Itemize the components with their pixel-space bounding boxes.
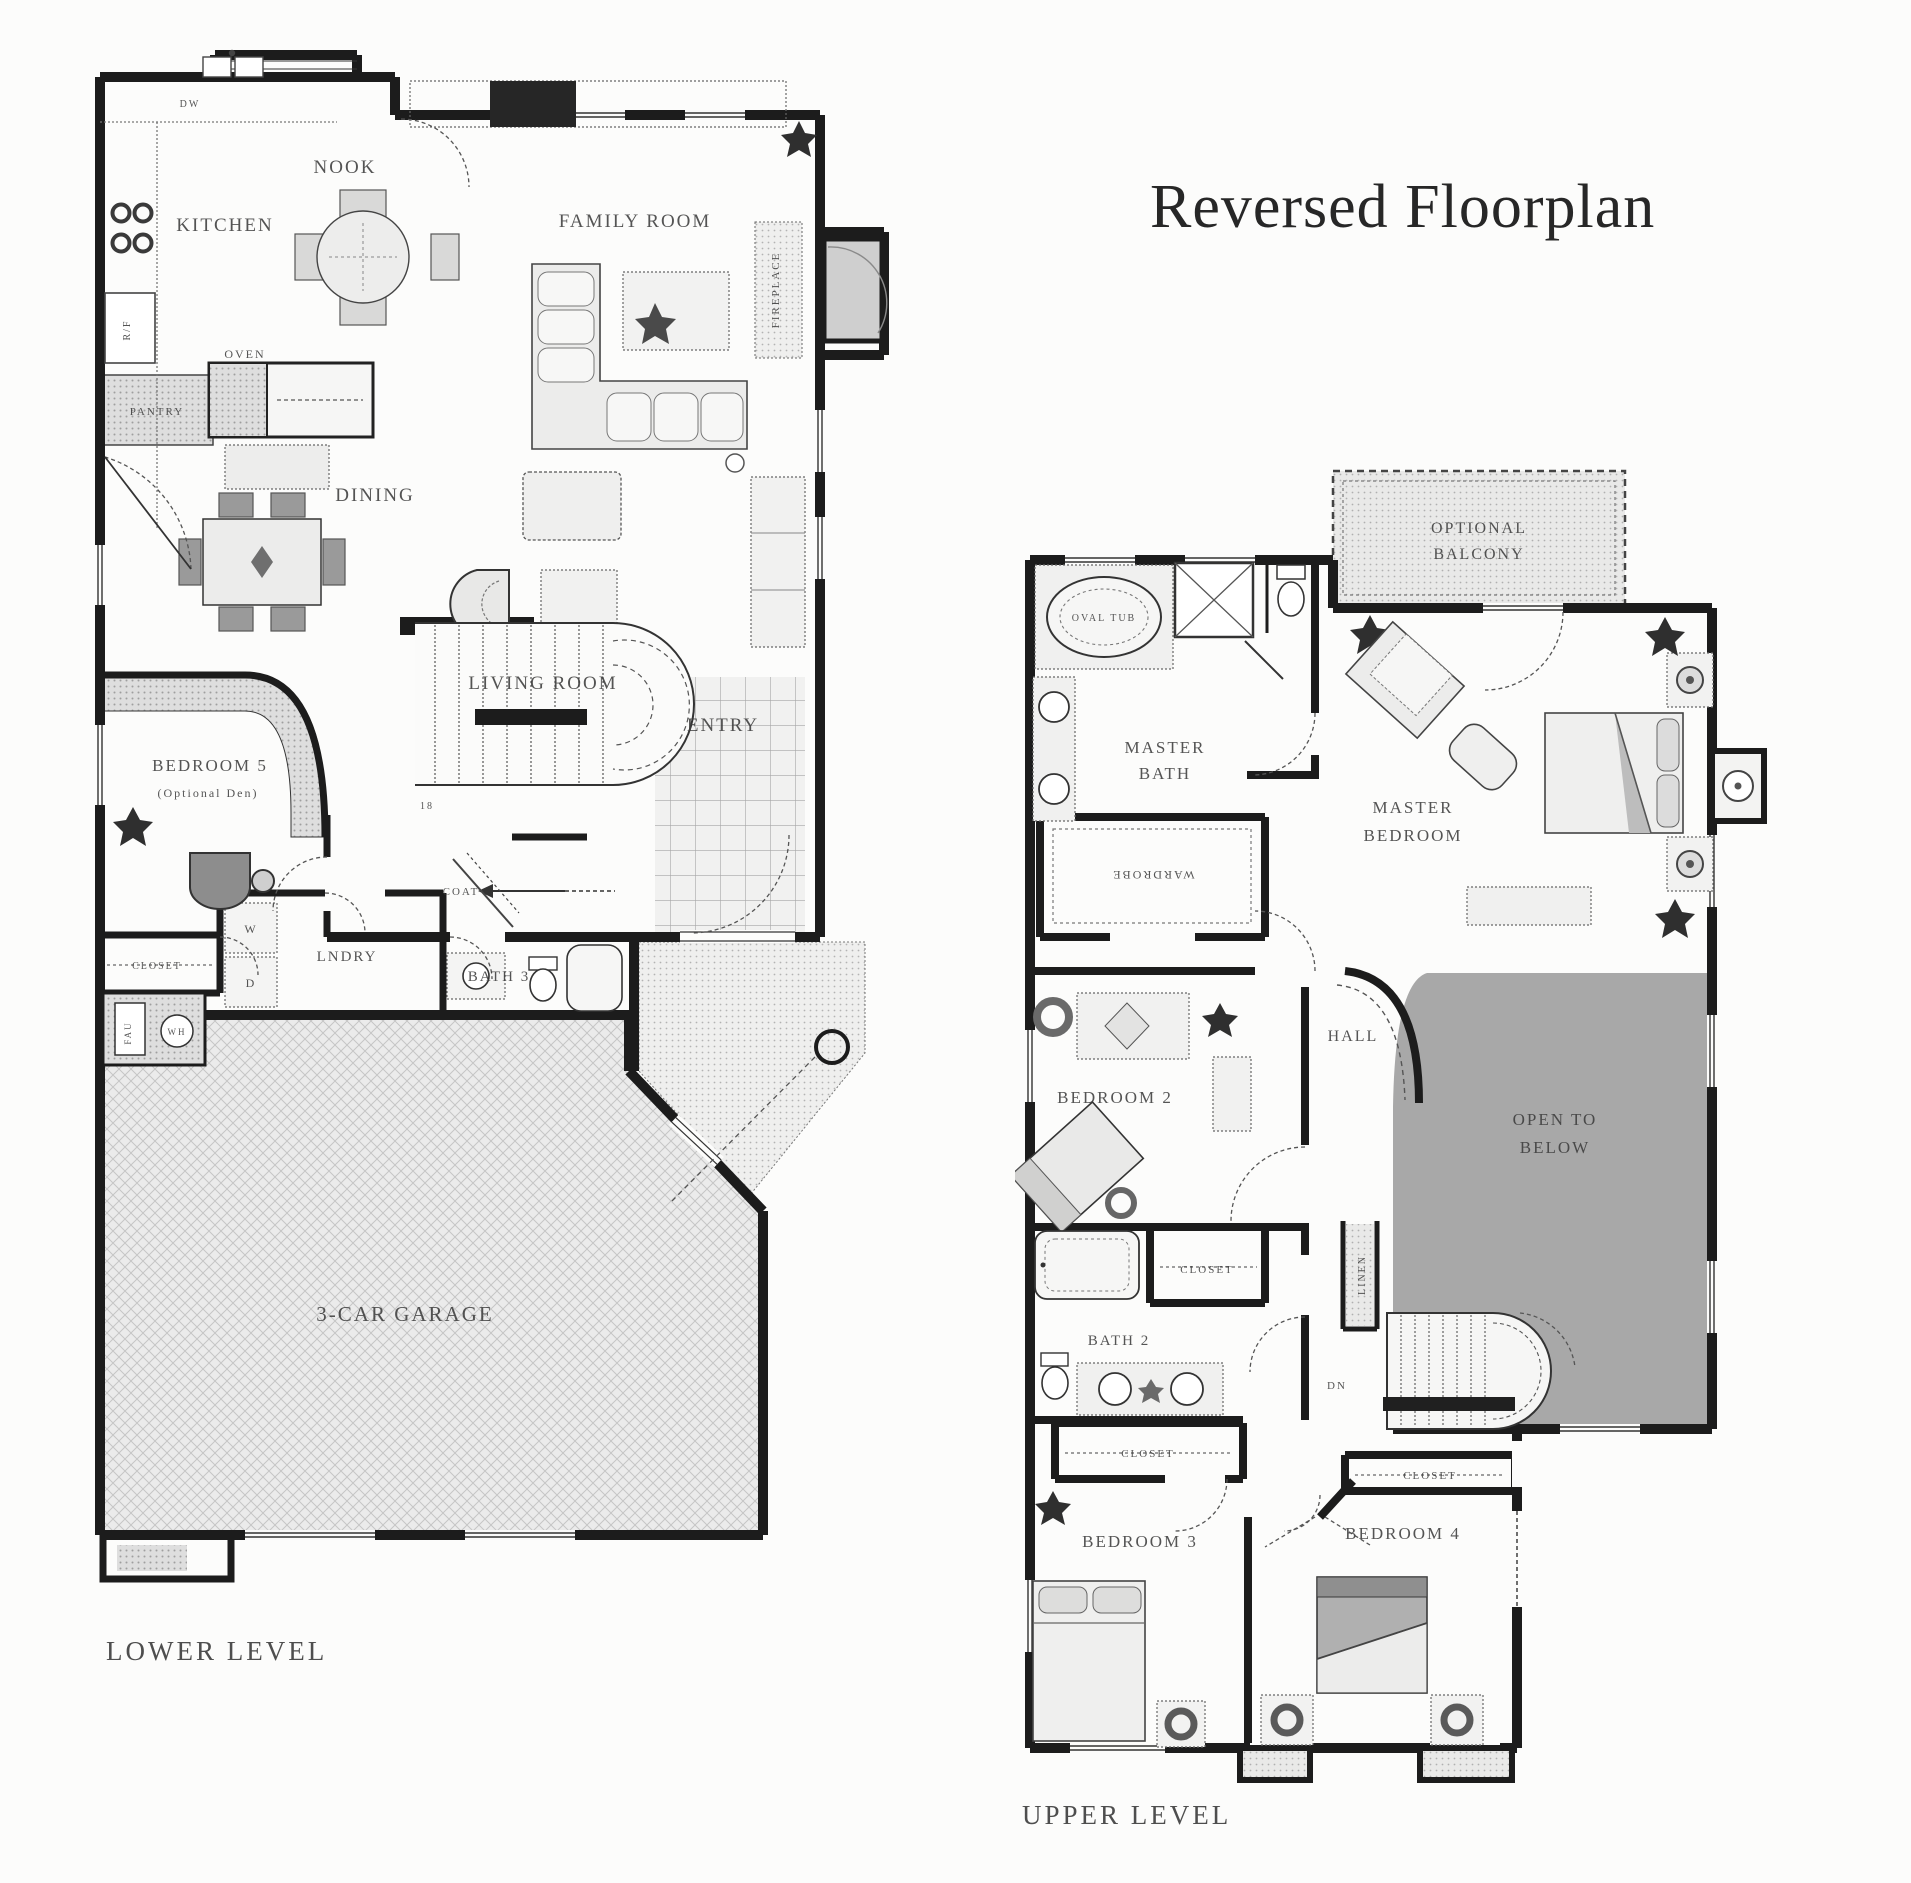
nightstand-icon xyxy=(1261,1695,1313,1745)
label-nook: NOOK xyxy=(314,157,377,178)
nook-table-icon xyxy=(295,190,459,325)
bedroom3-bay-bump xyxy=(1240,1748,1310,1780)
plant-icon xyxy=(113,807,153,846)
lower-level-caption: LOWER LEVEL xyxy=(106,1636,327,1667)
label-master-bedroom-1: MASTER xyxy=(1373,798,1454,817)
porch-column-icon xyxy=(816,1031,848,1063)
pantry-door-leaf xyxy=(105,457,191,569)
ottoman-icon xyxy=(1444,719,1522,796)
nightstand-icon xyxy=(1157,1701,1205,1747)
label-laundry: LNDRY xyxy=(317,949,378,965)
dresser-icon xyxy=(1467,887,1591,925)
label-bedroom3: BEDROOM 3 xyxy=(1082,1532,1198,1551)
plant-icon xyxy=(1202,1003,1238,1037)
label-kitchen: KITCHEN xyxy=(176,215,273,236)
label-pantry: PANTRY xyxy=(130,406,184,418)
label-master-bedroom-2: BEDROOM xyxy=(1363,826,1462,845)
sink-icon xyxy=(1039,774,1069,804)
garage-step-inset xyxy=(117,1545,187,1571)
sink-icon xyxy=(1039,692,1069,722)
bath2-fixtures xyxy=(1035,1231,1223,1415)
label-linen: LINEN xyxy=(1357,1255,1368,1295)
upper-floorplan-svg: OPTIONAL BALCONY OVAL TUB MASTER BATH WA… xyxy=(1015,455,1775,1855)
upper-level-caption: UPPER LEVEL xyxy=(1022,1800,1231,1831)
fireplace-icon xyxy=(824,239,887,341)
sink-icon xyxy=(1099,1373,1131,1405)
dining-table-icon xyxy=(179,493,345,631)
master-bed-icon xyxy=(1545,713,1683,833)
label-coat: COAT xyxy=(443,886,480,898)
toilet-icon xyxy=(530,969,556,1001)
plant-icon xyxy=(1645,617,1685,656)
stairs-icon xyxy=(415,623,694,898)
label-bath2: BATH 2 xyxy=(1088,1333,1150,1349)
label-hall: HALL xyxy=(1328,1028,1379,1045)
toilet-tank xyxy=(1041,1353,1068,1366)
label-garage: 3-CAR GARAGE xyxy=(316,1302,493,1326)
wall-sofa-icon xyxy=(751,477,805,647)
bedroom5-vanity-icon xyxy=(190,853,274,909)
oven-island-icon xyxy=(209,363,373,437)
label-balcony-2: BALCONY xyxy=(1433,546,1524,563)
label-master-bath-2: BATH xyxy=(1139,764,1191,783)
label-bedroom5: BEDROOM 5 xyxy=(152,756,268,775)
plant-icon xyxy=(1035,1491,1071,1525)
label-fireplace: FIREPLACE xyxy=(770,252,782,329)
stove-icon xyxy=(113,205,152,252)
bed-icon xyxy=(1317,1577,1427,1693)
label-stair-risers: 18 xyxy=(420,801,434,812)
label-open-1: OPEN TO xyxy=(1513,1110,1598,1129)
label-closet-bedroom2: CLOSET xyxy=(1180,1264,1234,1276)
label-bedroom5-note: (Optional Den) xyxy=(158,786,259,800)
optional-balcony xyxy=(1333,471,1625,605)
utility-alcove xyxy=(103,993,205,1065)
label-entry: ENTRY xyxy=(687,715,759,736)
bed-icon xyxy=(1033,1581,1145,1741)
kitchen-buffet xyxy=(225,445,329,489)
tub-icon xyxy=(567,945,622,1011)
label-bedroom2: BEDROOM 2 xyxy=(1057,1088,1173,1107)
tv-icon xyxy=(490,81,576,127)
label-oval-tub: OVAL TUB xyxy=(1072,613,1136,624)
stool-icon xyxy=(1108,1190,1134,1216)
tub-icon xyxy=(1035,1231,1139,1299)
side-table-icon xyxy=(726,454,744,472)
label-refrigerator: R/F xyxy=(122,319,133,340)
interior-walls xyxy=(100,815,587,1015)
label-dining: DINING xyxy=(335,485,415,506)
label-wardrobe: WARDROBE xyxy=(1111,868,1194,882)
toilet-tank xyxy=(529,957,557,970)
media-console xyxy=(410,81,786,127)
plant-icon xyxy=(1655,899,1695,938)
page-title: Reversed Floorplan xyxy=(1150,172,1830,243)
label-dryer: D xyxy=(246,976,257,990)
label-down: DN xyxy=(1327,1380,1347,1392)
bedroom4-bay-bump xyxy=(1420,1748,1512,1780)
label-bath3: BATH 3 xyxy=(468,969,530,985)
nightstand-icon xyxy=(1667,837,1713,891)
nightstand-icon xyxy=(1431,1695,1483,1745)
label-family-room: FAMILY ROOM xyxy=(559,211,712,232)
stool-icon xyxy=(1037,1001,1069,1033)
label-oven: OVEN xyxy=(224,347,265,361)
desk-icon xyxy=(1213,1057,1251,1131)
label-water-heater: WH xyxy=(168,1027,187,1037)
master-window-box xyxy=(1712,751,1764,821)
toilet-tank xyxy=(1277,565,1305,579)
sink-icon xyxy=(1171,1373,1203,1405)
washer-dryer-icon xyxy=(225,903,277,1007)
label-master-bath-1: MASTER xyxy=(1125,738,1206,757)
label-closet-bedroom4: CLOSET xyxy=(1403,1470,1457,1482)
label-living-room: LIVING ROOM xyxy=(468,673,617,694)
label-closet-bedroom5: CLOSET xyxy=(132,961,182,972)
label-dishwasher: DW xyxy=(180,99,201,110)
rug-icon xyxy=(1077,993,1189,1059)
label-fau: FAU xyxy=(123,1021,133,1044)
toilet-icon xyxy=(1042,1367,1068,1399)
loveseat-icon xyxy=(523,472,621,540)
label-closet-hall: CLOSET xyxy=(1121,1448,1175,1460)
toilet-icon xyxy=(1278,582,1304,616)
coffee-table-icon xyxy=(623,272,729,350)
upper-level-plan: OPTIONAL BALCONY OVAL TUB MASTER BATH WA… xyxy=(1015,455,1775,1855)
label-washer: W xyxy=(244,922,257,936)
label-bedroom4: BEDROOM 4 xyxy=(1345,1524,1461,1543)
label-open-2: BELOW xyxy=(1520,1138,1590,1157)
lower-floorplan-svg: KITCHEN DW NOOK FAMILY ROOM FIREPLACE OV… xyxy=(95,25,895,1585)
label-balcony-1: OPTIONAL xyxy=(1431,520,1527,537)
lower-level-plan: KITCHEN DW NOOK FAMILY ROOM FIREPLACE OV… xyxy=(95,25,895,1585)
nightstand-icon xyxy=(1667,653,1713,707)
